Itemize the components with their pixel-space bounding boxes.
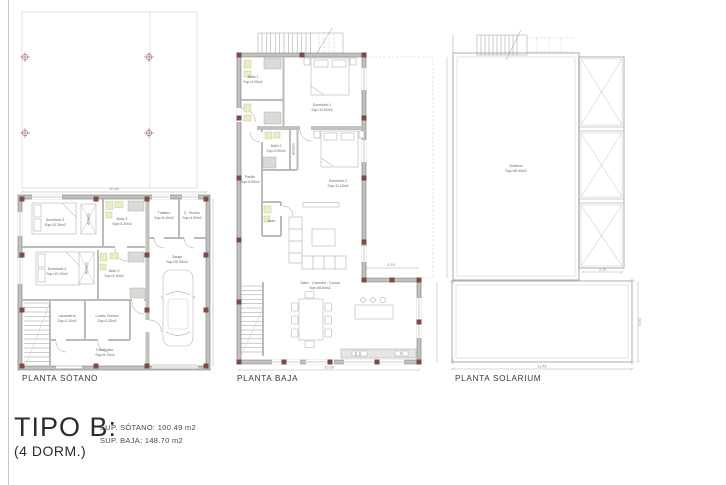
room-sup: Sup=28.35m2 [166,260,187,264]
room-sup: Sup=6.10m2 [95,353,114,357]
room-sup: Sup=10.35m2 [44,223,65,227]
room-sup: Sup=48.50m2 [309,286,330,290]
room-label: Baño 2 [271,144,282,148]
room-label: Lavandería [59,314,76,318]
room-sup: Sup=11.15m2 [328,184,349,188]
room-sup: Sup=12.60m2 [311,108,332,112]
terrace-projection [366,57,433,278]
room-label: Cuarto Técnico [96,314,119,318]
dim-text: 3.10 [387,262,395,267]
room-sup: Sup=5.10m2 [154,216,173,220]
room-label: Baño 2 [117,217,128,221]
room-label: C. Técnico [184,211,200,215]
room-sup: Sup=3.25m2 [97,319,116,323]
room-label: Baño 3 [109,269,120,273]
dim-text: 5.00 [637,317,642,325]
living-room-furniture [289,203,346,270]
room-label: Armario [87,213,91,225]
kitchen-counter [341,349,416,358]
room-sup: Sup=4.90m2 [182,216,201,220]
room-sup: Sup=3.90m2 [266,149,285,153]
floor-plan-sheet: 10.50 [0,0,726,485]
dimension-line-sotano-width: 10.50 [21,186,208,194]
room-sup: Sup=10.20m2 [46,272,67,276]
plan-label-solarium: PLANTA SOLARIUM [455,374,541,383]
sup-sotano-text: SUP. SÓTANO: 100.49 m2 [100,421,196,434]
room-sup: Sup=98.40m2 [505,169,526,173]
room-label: Dormitorio 3 [46,218,65,222]
room-label: Aseo [268,219,276,223]
dimension-solarium-width: 11.45 [451,364,634,371]
dimension-terrace: 3.10 [365,262,419,270]
room-label: Solárium [509,164,523,168]
pergola-panels [579,57,624,268]
column-markers [20,52,154,138]
room-label: Dormitorio 2 [329,179,348,183]
roof-outline [22,12,197,188]
plan-label-baja: PLANTA BAJA [237,374,298,383]
garage-door-opening [152,364,198,369]
stairs-sotano [24,302,50,365]
plan-sotano: 10.50 [18,12,213,383]
sup-baja-text: SUP. BAJA: 148.70 m2 [100,434,196,447]
room-label: Armario [292,143,296,155]
car [161,270,195,346]
room-labels-solarium: Solárium Sup=98.40m2 [505,164,526,173]
surface-areas: SUP. SÓTANO: 100.49 m2 SUP. BAJA: 148.70… [100,421,196,447]
room-label: Salón - Comedor - Cocina [300,281,339,285]
room-label: Dormitorio 1 [313,103,332,107]
room-label: Distribuidor [96,348,114,352]
room-label: Garaje [172,255,182,259]
room-label: Pasillo [245,175,255,179]
room-sup: Sup=4.30m2 [112,222,131,226]
room-label: Baño 1 [248,75,259,79]
dim-text: 11.45 [537,364,546,369]
kitchen-island [355,297,393,319]
solarium-lower-roof [450,278,635,365]
bathroom1-fixtures [244,58,281,124]
plan-solarium: 3.10 11.45 5.00 Solárium Sup=98.40m2 PLA… [447,30,642,383]
plan-baja: 3.10 10.50 Baño 1 Sup=4.05m2 Baño 2 Sup=… [237,28,438,383]
stairs-baja-lower [241,286,263,356]
room-label: Armario [85,262,89,274]
room-label: Trastero [158,211,171,215]
dimension-baja-width: 10.50 [238,365,421,372]
room-sup: Sup=3.10m2 [57,319,76,323]
room-sup: Sup=6.95m2 [240,180,259,184]
dimension-solarium-height: 5.00 [637,282,643,364]
dimension-panel: 3.10 [582,267,624,274]
room-sup: Sup=4.05m2 [243,80,262,84]
plan-label-sotano: PLANTA SÓTANO [22,373,98,383]
bed-dorm1 [304,58,356,95]
room-sup: Sup=4.15m2 [104,274,123,278]
dining-table [292,292,332,348]
dim-text: 3.10 [599,267,607,272]
dim-text: 10.50 [109,186,120,191]
room-label: Dormitorio 4 [48,267,67,271]
dim-text: 10.50 [324,365,335,370]
bathroom2-fixtures [106,201,144,218]
stairs-solarium [453,30,575,60]
bed-dorm2 [314,131,364,167]
